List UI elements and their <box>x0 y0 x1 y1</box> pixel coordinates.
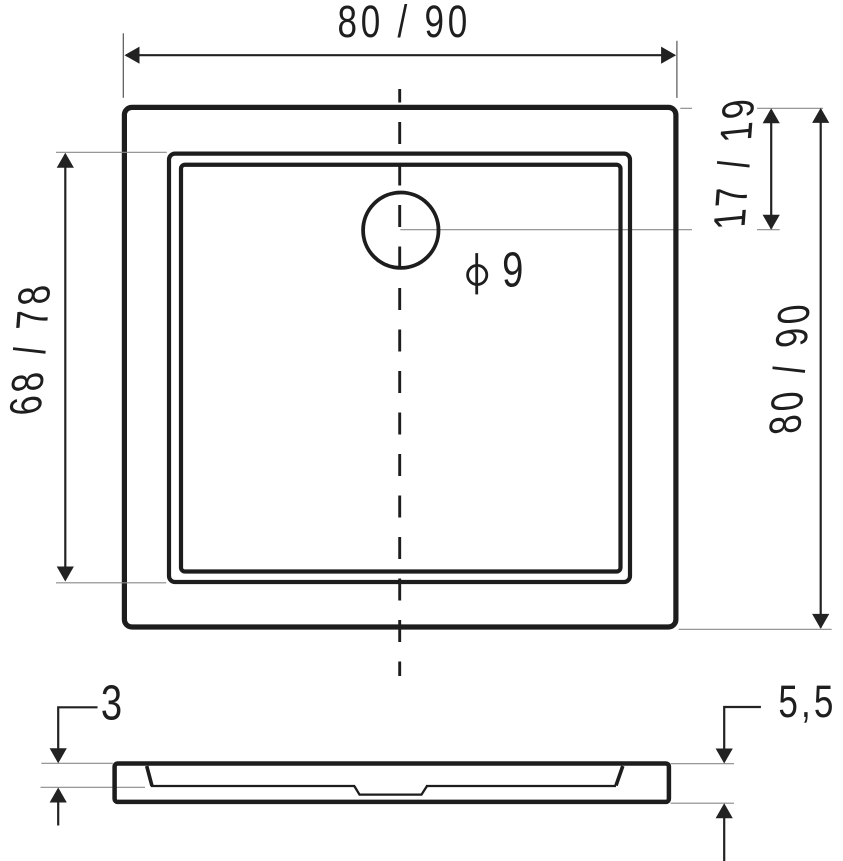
svg-text:3: 3 <box>101 676 122 731</box>
svg-text:68 / 78: 68 / 78 <box>0 279 61 418</box>
svg-text:17 / 19: 17 / 19 <box>703 93 764 232</box>
svg-text:9: 9 <box>502 243 523 298</box>
svg-text:80 / 90: 80 / 90 <box>338 0 472 47</box>
svg-text:80 / 90: 80 / 90 <box>759 298 820 437</box>
svg-text:5,5: 5,5 <box>778 676 836 727</box>
